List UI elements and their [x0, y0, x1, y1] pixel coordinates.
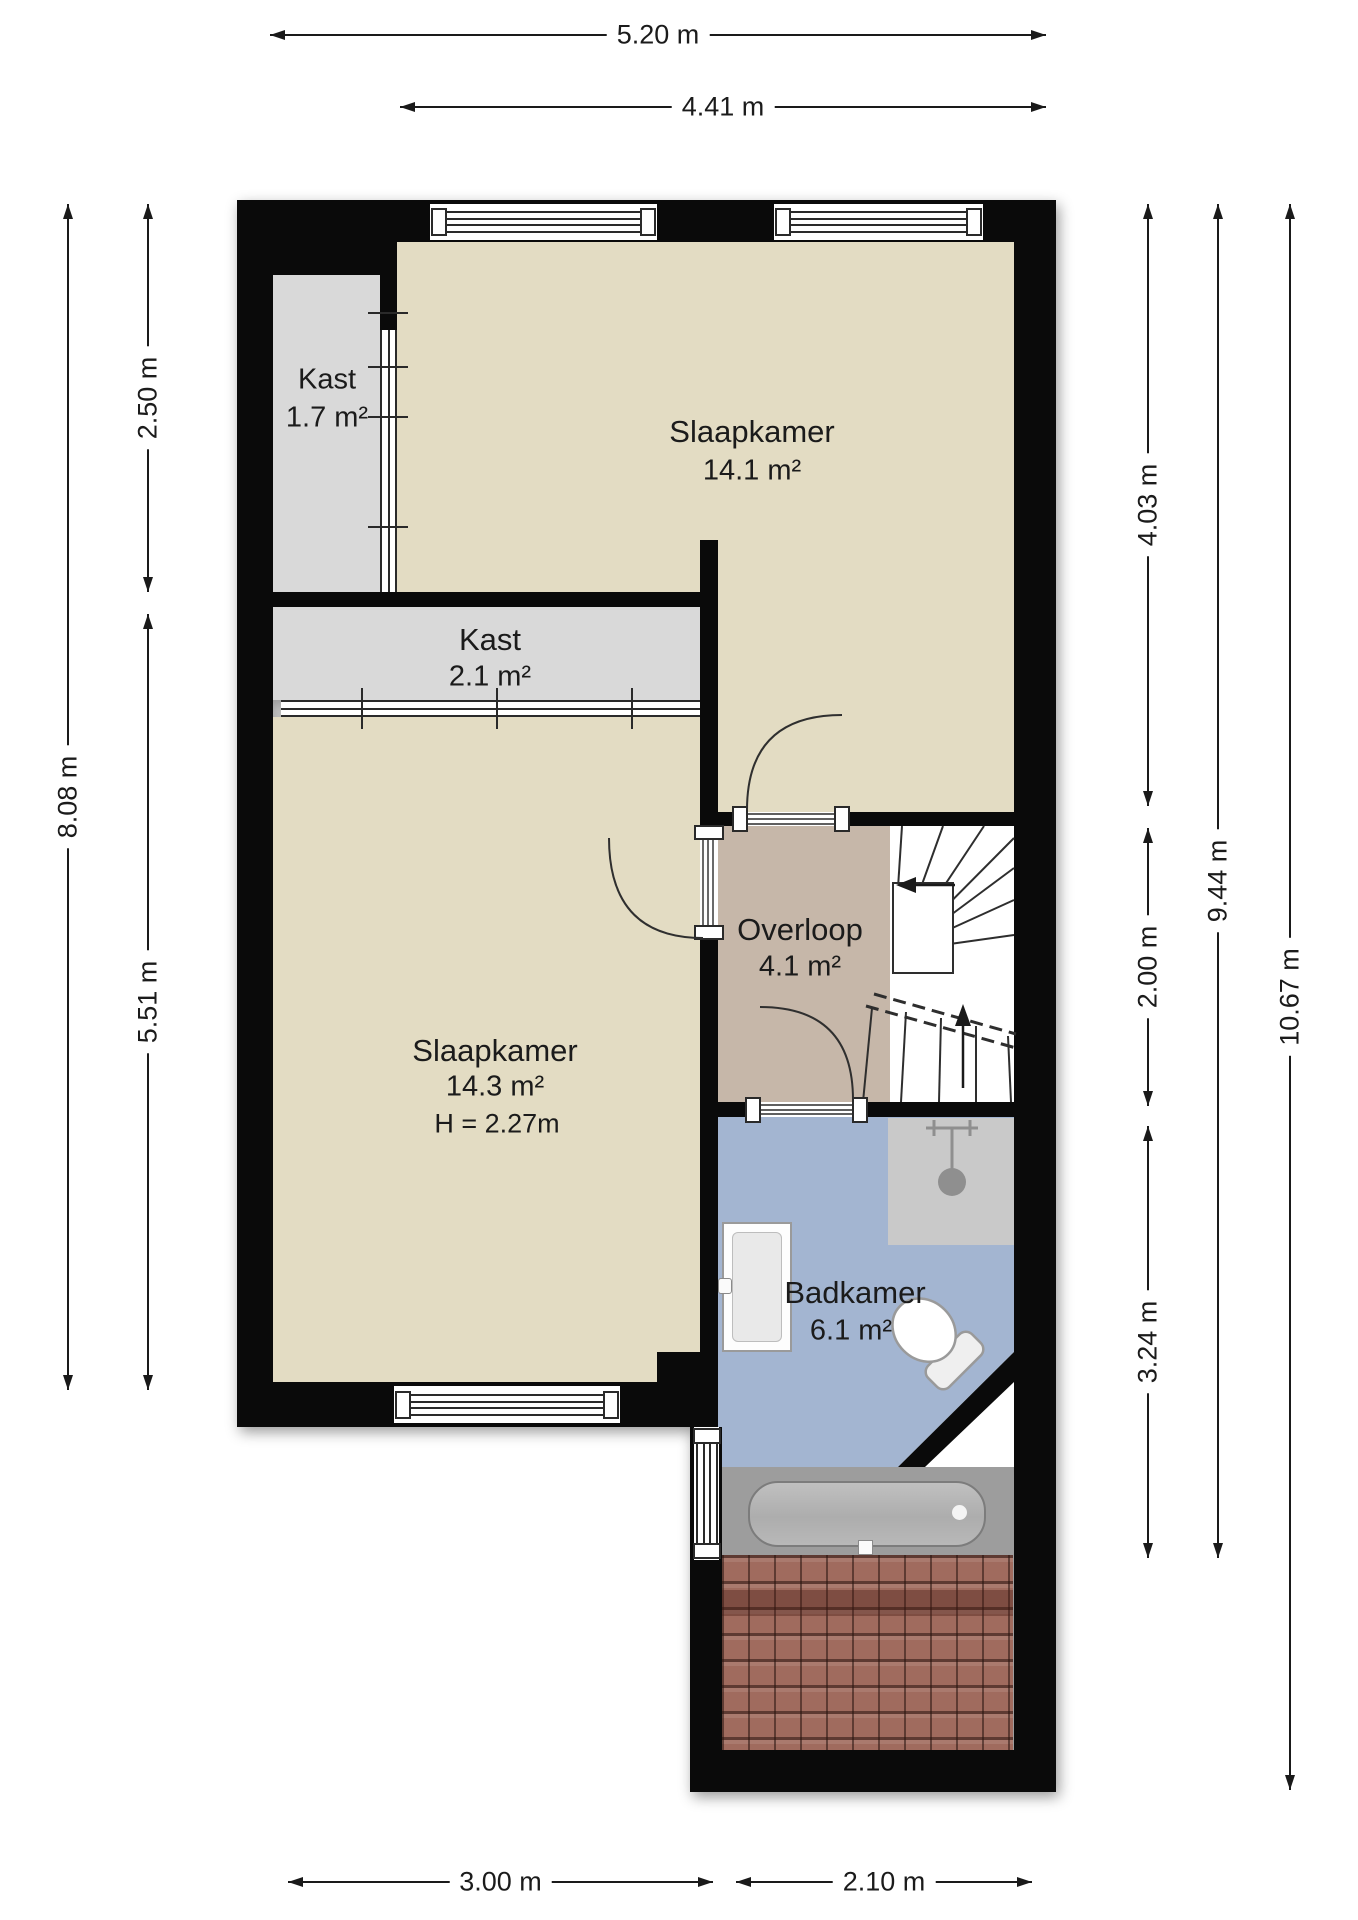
- window-glazing: [790, 211, 967, 233]
- sliding-door-kast-2: [281, 700, 700, 717]
- shower-area: [888, 1118, 1014, 1245]
- wall-left: [237, 200, 273, 1427]
- door-opening-badkamer: [753, 1102, 860, 1117]
- window-post: [775, 208, 791, 236]
- label-kast2-name: Kast: [459, 622, 521, 658]
- wall-right: [1014, 200, 1056, 1792]
- window-post: [431, 208, 447, 236]
- window-post: [603, 1391, 619, 1419]
- label-kast1-name: Kast: [298, 364, 356, 397]
- label-kast2-area: 2.1 m²: [449, 661, 531, 694]
- washbasin-tap: [718, 1278, 732, 1294]
- bathtub-drain: [952, 1505, 967, 1520]
- wall-kast1-door-stub: [380, 242, 397, 330]
- window-glazing: [410, 1394, 604, 1416]
- floorplan-canvas: 5.20 m 4.41 m 3.00 m 2.10 m 8.08 m 2.50 …: [0, 0, 1358, 1920]
- window-post: [640, 208, 656, 236]
- wall-kast2-top: [237, 592, 718, 607]
- washbasin-bowl: [732, 1232, 782, 1342]
- room-slaapkamer-1-lower: [718, 592, 1014, 812]
- label-slaapkamer2-height: H = 2.27m: [434, 1109, 559, 1140]
- window-glazing: [696, 1443, 718, 1544]
- wall-balcony-bottom: [690, 1750, 1056, 1792]
- window-post: [693, 1543, 721, 1559]
- bathtub: [748, 1481, 986, 1547]
- window-post: [395, 1391, 411, 1419]
- label-slaapkamer2-area: 14.3 m²: [446, 1071, 544, 1104]
- window-post: [693, 1428, 721, 1444]
- window-top-1: [430, 204, 657, 240]
- label-badkamer-name: Badkamer: [784, 1275, 925, 1311]
- bathtub-tap: [858, 1540, 873, 1555]
- label-badkamer-area: 6.1 m²: [810, 1315, 892, 1348]
- window-left-lower: [694, 1427, 719, 1560]
- label-overloop-area: 4.1 m²: [759, 951, 841, 984]
- label-slaapkamer1-name: Slaapkamer: [669, 414, 834, 450]
- label-overloop-name: Overloop: [737, 912, 863, 948]
- washbasin: [722, 1222, 792, 1352]
- door-opening-slaapkamer1: [740, 812, 842, 826]
- window-bottom: [394, 1386, 620, 1423]
- stairwell-area: [890, 826, 1014, 1102]
- roof-tiles-ridge: [722, 1590, 1013, 1616]
- label-kast1-area: 1.7 m²: [286, 402, 368, 435]
- window-post: [966, 208, 982, 236]
- window-top-2: [774, 204, 983, 240]
- door-opening-slaapkamer2: [700, 838, 718, 927]
- label-slaapkamer2-name: Slaapkamer: [412, 1033, 577, 1069]
- label-slaapkamer1-area: 14.1 m²: [703, 455, 801, 488]
- building: Kast 1.7 m² Slaapkamer 14.1 m² Kast 2.1 …: [0, 0, 1358, 1920]
- window-glazing: [446, 211, 641, 233]
- wall-mid-vertical: [700, 540, 718, 1427]
- sliding-door-kast-1: [380, 330, 397, 592]
- roof-tiles: [722, 1555, 1013, 1750]
